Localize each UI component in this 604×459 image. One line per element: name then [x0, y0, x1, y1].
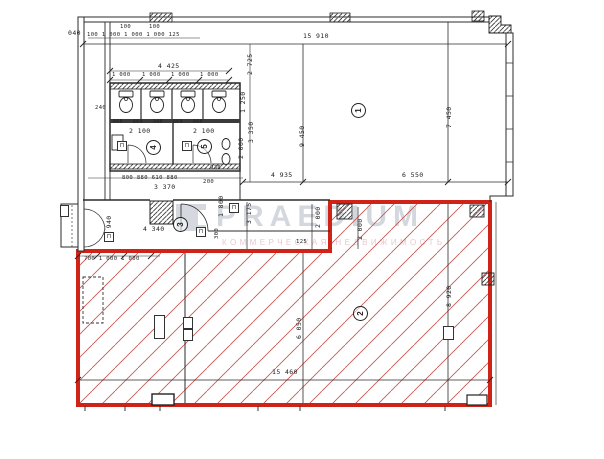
toilet-icon	[212, 91, 226, 113]
toilet-icon	[150, 91, 164, 113]
lobby-area	[61, 201, 330, 249]
toilet-icon	[181, 91, 195, 113]
sink-icon	[112, 135, 123, 150]
urinal-icon	[222, 154, 230, 165]
floor-plan-drawing	[0, 0, 604, 459]
floor-plan-page: PRAEDIUM КОММЕРЧЕСКАЯ НЕДВИЖИМОСТЬ	[0, 0, 604, 459]
sanitary-block	[110, 83, 240, 171]
urinal-icon	[222, 139, 230, 150]
highlighted-area-2	[78, 202, 496, 411]
toilet-icon	[119, 91, 133, 113]
